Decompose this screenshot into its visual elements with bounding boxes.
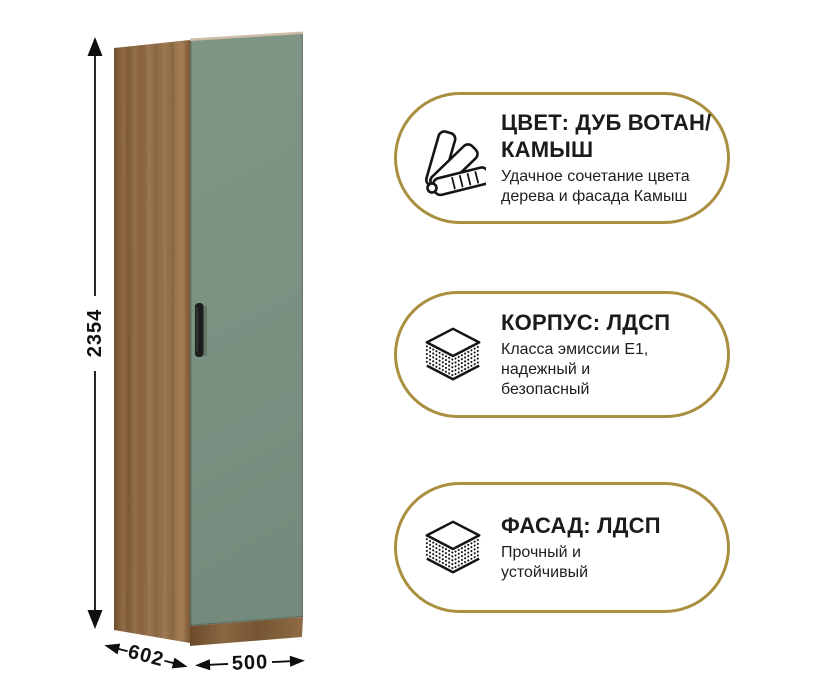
width-dimension: 500 [195, 650, 306, 677]
height-dimension: 2354 [84, 37, 106, 629]
handle-shadow [204, 306, 208, 356]
arrow-right-icon [172, 658, 189, 672]
depth-dimension: 602 [102, 635, 191, 678]
badge-title-line: ФАСАД: ЛДСП [501, 512, 715, 539]
badge-subtitle-line: Прочный и [501, 543, 715, 563]
feature-badge-color: ЦВЕТ: ДУБ ВОТАН/ КАМЫШ Удачное сочетание… [394, 92, 730, 224]
arrow-right-icon [290, 655, 305, 667]
feature-badge-facade: ФАСАД: ЛДСП Прочный и устойчивый [394, 482, 730, 613]
layers-icon [419, 324, 487, 386]
depth-dimension-label: 602 [126, 641, 167, 671]
width-dimension-label: 500 [231, 651, 268, 675]
badge-subtitle-line: дерева и фасада Камыш [501, 187, 715, 207]
badge-subtitle-line: Класса эмиссии Е1, [501, 340, 715, 360]
color-swatches-icon [419, 116, 487, 200]
badge-subtitle-line: надежный и [501, 360, 715, 380]
feature-badge-body: КОРПУС: ЛДСП Класса эмиссии Е1, надежный… [394, 291, 730, 418]
badge-subtitle-line: безопасный [501, 380, 715, 400]
arrow-down-icon [88, 610, 103, 629]
arrow-left-icon [195, 659, 210, 671]
badge-title-line: ЦВЕТ: ДУБ ВОТАН/ [501, 109, 715, 136]
product-infographic: 2354 602 500 [0, 0, 816, 700]
wardrobe-side-panel [114, 40, 190, 643]
badge-subtitle-line: Удачное сочетание цвета [501, 167, 715, 187]
badge-subtitle-line: устойчивый [501, 563, 715, 583]
layers-icon [419, 517, 487, 579]
badge-title-line: КОРПУС: ЛДСП [501, 309, 715, 336]
badge-title-line: КАМЫШ [501, 136, 715, 163]
height-dimension-label: 2354 [84, 309, 106, 358]
arrow-left-icon [103, 640, 120, 654]
arrow-up-icon [88, 37, 103, 56]
door-handle [195, 303, 204, 357]
